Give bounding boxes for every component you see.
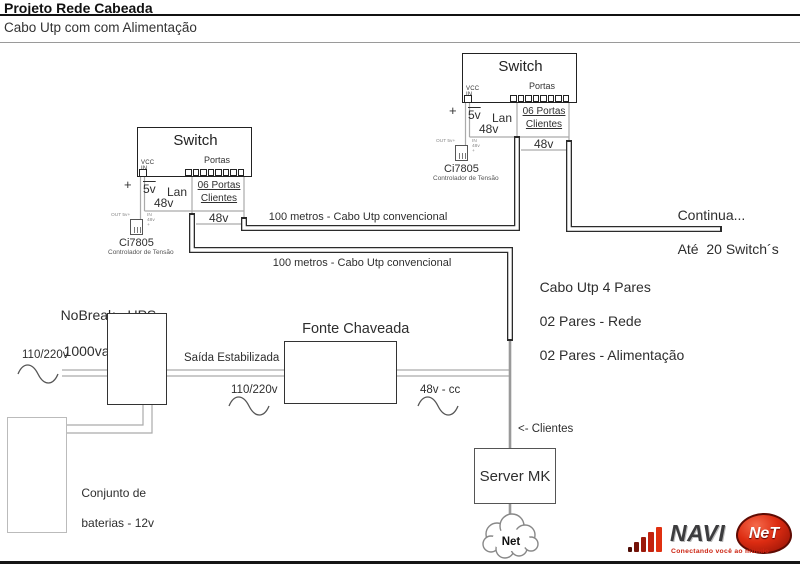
title-rule	[0, 14, 800, 16]
ci7805-label: Ci7805	[444, 163, 479, 175]
48v-label-a: 48v	[154, 196, 173, 210]
in-48v-label: IN 48v +	[472, 139, 480, 154]
switch-group-right: Switch VCC IN Portas + 5v Lan 06 Portas …	[462, 53, 463, 54]
5v-label: 5v	[143, 182, 156, 196]
switch-group-left: Switch VCC IN Portas + 5v Lan 06 Portas …	[137, 127, 138, 128]
portas-label: Portas	[189, 155, 245, 165]
logo-bar	[634, 542, 639, 552]
port-icon	[215, 169, 222, 176]
48v-label-a: 48v	[479, 122, 498, 136]
utp-spec-label: Cabo Utp 4 Pares 02 Pares - Rede 02 Pare…	[524, 262, 684, 381]
ci7805-box	[130, 219, 143, 235]
diagram-canvas: Net Projeto Rede Cabeada Cabo Utp com co…	[0, 0, 800, 570]
logo-bar	[641, 537, 646, 552]
ci7805-box	[455, 145, 468, 161]
logo-bar	[656, 527, 662, 552]
subtitle-rule	[0, 42, 800, 43]
logo-bar	[648, 532, 654, 552]
port-icon	[510, 95, 517, 102]
fonte-box	[284, 341, 397, 404]
port-icon	[533, 95, 540, 102]
out-5v-label: OUT 5v+	[111, 213, 130, 218]
dc-out-label: 48v - cc	[420, 384, 460, 396]
port-icon	[518, 95, 525, 102]
switch-title: Switch	[463, 58, 578, 75]
battery-label: Conjunto de baterias - 12v	[68, 471, 154, 546]
logo-bars-icon	[628, 547, 632, 552]
portas-label: Portas	[514, 81, 570, 91]
port-icon	[208, 169, 215, 176]
server-box: Server MK	[474, 448, 556, 504]
ci7805-desc: Controlador de Tensão	[433, 175, 499, 182]
logo-navi-text: NAVI	[670, 520, 725, 547]
port-icon	[548, 95, 555, 102]
port-icon	[200, 169, 207, 176]
port-icon	[193, 169, 200, 176]
port-icon	[238, 169, 245, 176]
switch-title: Switch	[138, 132, 253, 149]
net-cloud: Net	[483, 514, 538, 558]
logo-net-text: NeT	[749, 525, 779, 543]
port-icon	[555, 95, 562, 102]
vcc-port-icon	[464, 95, 472, 103]
ups-box	[107, 313, 167, 405]
vcc-port-icon	[139, 169, 147, 177]
port-icon	[525, 95, 532, 102]
ac-input-label: 110/220v	[22, 349, 68, 361]
out-5v-label: OUT 5v+	[436, 139, 455, 144]
48v-label-b: 48v	[534, 137, 553, 151]
server-label: Server MK	[480, 468, 551, 485]
page-subtitle: Cabo Utp com com Alimentação	[4, 20, 197, 35]
saida-label: Saída Estabilizada	[184, 352, 279, 364]
port-icon	[223, 169, 230, 176]
ports-clients-label: 06 Portas Clientes	[193, 179, 245, 205]
port-icon	[230, 169, 237, 176]
port-icon	[563, 95, 570, 102]
navinet-logo: NAVI NeT Conectando você ao mundo	[628, 512, 793, 558]
ci7805-label: Ci7805	[119, 237, 154, 249]
cable-run-label-2: 100 metros - Cabo Utp convencional	[262, 257, 462, 269]
5v-label: 5v	[468, 108, 481, 122]
net-label: Net	[502, 536, 521, 548]
bottom-rule	[0, 561, 800, 564]
plus-sign: +	[449, 103, 457, 118]
cable-run-label-1: 100 metros - Cabo Utp convencional	[258, 211, 458, 223]
battery-box	[7, 417, 67, 533]
ac-mid-label: 110/220v	[231, 384, 277, 396]
in-48v-label: IN 48v +	[147, 213, 155, 228]
48v-label-b: 48v	[209, 211, 228, 225]
clientes-label: <- Clientes	[518, 423, 573, 435]
port-icon	[540, 95, 547, 102]
logo-tagline: Conectando você ao mundo	[671, 548, 769, 555]
port-icon	[185, 169, 192, 176]
ci7805-desc: Controlador de Tensão	[108, 249, 174, 256]
plus-sign: +	[124, 177, 132, 192]
ports-clients-label: 06 Portas Clientes	[518, 105, 570, 131]
